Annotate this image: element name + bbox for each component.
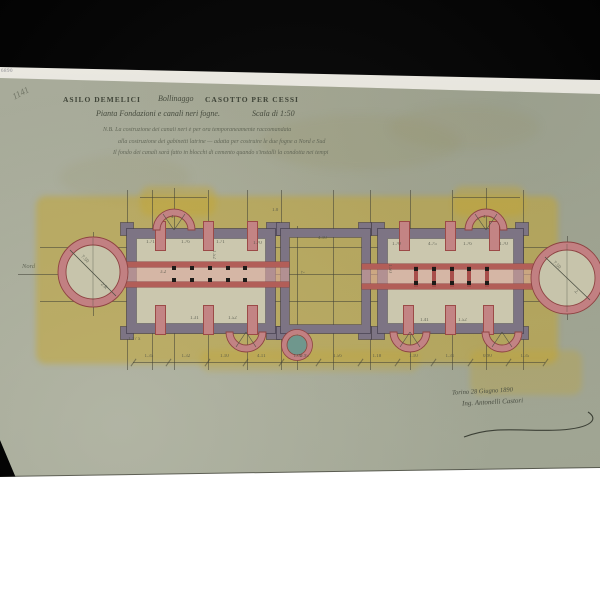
bottom-apse-mid	[390, 332, 430, 352]
dimension-chain-label: 1.56	[333, 354, 342, 359]
dimension-label: 3.2	[160, 270, 166, 275]
dimension-label: 1.41	[420, 318, 429, 323]
dimension-chain-line	[133, 362, 545, 363]
dimension-label: 1.50	[387, 264, 392, 273]
dimension-label: 1.52	[228, 316, 237, 321]
dimension-label: 1.31	[190, 316, 199, 321]
dimension-label: 4.75	[428, 242, 437, 247]
dimension-label: 2.	[299, 271, 304, 275]
dimension-chain-label: 0.90	[483, 354, 492, 359]
dimension-chain-label: 1.18	[373, 354, 382, 359]
dimension-chain-label: 1.10	[409, 354, 418, 359]
dimension-chain-label: 1.32	[182, 354, 191, 359]
dimension-chain-label: 1.35	[521, 354, 530, 359]
dimension-label: 1.52	[458, 318, 467, 323]
dimension-label: 4.10	[318, 236, 327, 241]
dimension-label: 4	[483, 215, 486, 220]
dimension-label: 1.0	[272, 208, 278, 213]
dimension-label: 4	[171, 215, 174, 220]
dimension-label: 1.52	[211, 250, 216, 259]
dimension-chain-label: 1.10	[220, 354, 229, 359]
left-rotunda	[58, 237, 128, 307]
dimension-chain-label: 4.11	[257, 354, 266, 359]
dimension-label: 1.70	[499, 242, 508, 247]
dimension-chain-label: 1.02	[294, 354, 303, 359]
top-left-apse	[153, 209, 195, 230]
bottom-apse-left	[226, 332, 266, 352]
dimension-label: 1.76	[463, 242, 472, 247]
top-right-apse	[465, 209, 507, 230]
dimension-label: 1.70	[253, 241, 262, 246]
signature-flourish	[464, 412, 593, 437]
dimension-label: 1.70	[392, 242, 401, 247]
dimension-label: 1.76	[181, 240, 190, 245]
photograph-of-architectural-drawing: 6890 1141 ASILO DEMELICI Bollinaggo CASO…	[0, 0, 600, 600]
dimension-label: 1.71	[216, 240, 225, 245]
bottom-apse-right	[482, 332, 522, 352]
dimension-chain-label: 1.31	[446, 354, 455, 359]
dimension-chain-label: 1.35	[145, 354, 154, 359]
right-rotunda	[531, 242, 600, 314]
dimension-label: 1.17 x	[128, 337, 141, 342]
dimension-label: 1.71	[146, 240, 155, 245]
